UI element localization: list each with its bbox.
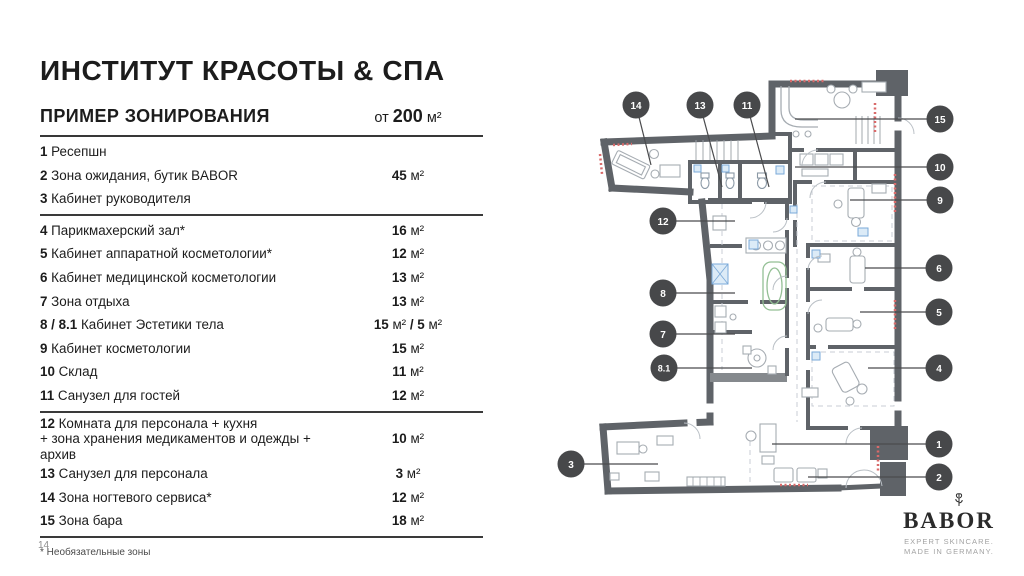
zone-name: Кабинет медицинской косметологии (47, 270, 276, 285)
zone-row: 15 Зона бара18 м² (40, 509, 483, 533)
zone-area: 45 м² (333, 168, 483, 184)
zone-area: 12 м² (333, 490, 483, 506)
rose-icon (952, 492, 966, 507)
svg-text:9: 9 (937, 196, 943, 207)
zone-name-line2: + зона хранения медикаментов и одежды + … (40, 431, 327, 462)
svg-text:10: 10 (934, 163, 946, 174)
min-area-unit: м² (423, 110, 442, 126)
zone-area: 15 м² / 5 м² (333, 317, 483, 333)
zoning-header: ПРИМЕР ЗОНИРОВАНИЯ от 200 м² (40, 106, 483, 137)
svg-text:8.1: 8.1 (658, 364, 671, 374)
zone-number: 11 (40, 388, 54, 403)
brand-logo: BABOR EXPERT SKINCARE. MADE IN GERMANY. (894, 492, 1004, 557)
zone-name: Зона бара (55, 513, 123, 528)
zone-name: Парикмахерский зал* (47, 223, 185, 238)
zone-name: Кабинет руководителя (47, 191, 190, 206)
zone-name: Комната для персонала + кухня (55, 416, 257, 431)
zones-list: 1 Ресепшн2 Зона ожидания, бутик BABOR45 … (40, 140, 483, 538)
zone-name: Ресепшн (47, 144, 106, 159)
zone-number: 14 (40, 490, 55, 505)
zone-name: Санузел для гостей (54, 388, 180, 403)
footnote: * Необязательные зоны (40, 547, 483, 558)
zoning-panel: ПРИМЕР ЗОНИРОВАНИЯ от 200 м² 1 Ресепшн2 … (40, 106, 483, 558)
zone-row: 7 Зона отдыха13 м² (40, 290, 483, 314)
svg-text:11: 11 (742, 101, 753, 112)
zoning-heading: ПРИМЕР ЗОНИРОВАНИЯ (40, 106, 333, 127)
min-area-value: 200 (393, 106, 423, 126)
zone-name: Склад (55, 364, 97, 379)
zone-area: 10 м² (333, 431, 483, 447)
svg-text:15: 15 (934, 115, 946, 126)
zone-area: 11 м² (333, 364, 483, 380)
zone-name: Кабинет аппаратной косметологии* (47, 246, 272, 261)
zone-area: 15 м² (333, 341, 483, 357)
zone-row: 14 Зона ногтевого сервиса*12 м² (40, 486, 483, 510)
zone-row: 9 Кабинет косметологии15 м² (40, 337, 483, 361)
group-divider (40, 536, 483, 538)
slide-root: ИНСТИТУТ КРАСОТЫ & СПА ПРИМЕР ЗОНИРОВАНИ… (0, 0, 1024, 576)
svg-text:6: 6 (936, 264, 942, 275)
brand-name: BABOR (894, 508, 1004, 534)
svg-text:8: 8 (660, 289, 666, 300)
zone-row: 12 Комната для персонала + кухня+ зона х… (40, 416, 483, 463)
zone-row: 1 Ресепшн (40, 140, 483, 164)
svg-text:3: 3 (568, 460, 574, 471)
zone-number: 12 (40, 416, 55, 431)
zone-area: 13 м² (333, 270, 483, 286)
zone-name: Зона ногтевого сервиса* (55, 490, 212, 505)
svg-text:1: 1 (936, 440, 942, 451)
plan-callout-1: 1 (772, 431, 953, 458)
page-number: 14 (38, 540, 49, 551)
svg-text:4: 4 (936, 364, 942, 375)
page-title: ИНСТИТУТ КРАСОТЫ & СПА (40, 55, 445, 87)
zone-row: 10 Склад11 м² (40, 360, 483, 384)
brand-tagline-line2: MADE IN GERMANY. (894, 547, 1004, 557)
svg-text:12: 12 (657, 217, 669, 228)
plan-callout-5: 5 (860, 299, 953, 326)
plan-callout-9: 9 (850, 187, 954, 214)
brand-tagline-line1: EXPERT SKINCARE. (894, 537, 1004, 547)
zone-row: 3 Кабинет руководителя (40, 187, 483, 211)
zone-row: 4 Парикмахерский зал*16 м² (40, 219, 483, 243)
plan-callout-4: 4 (868, 355, 953, 382)
zone-row: 6 Кабинет медицинской косметологии13 м² (40, 266, 483, 290)
zone-area: 12 м² (333, 388, 483, 404)
brand-tagline: EXPERT SKINCARE. MADE IN GERMANY. (894, 537, 1004, 557)
zone-number: 8 / 8.1 (40, 317, 77, 332)
zone-number: 13 (40, 466, 55, 481)
zone-name: Кабинет Эстетики тела (77, 317, 224, 332)
zone-number: 15 (40, 513, 55, 528)
zone-row: 8 / 8.1 Кабинет Эстетики тела15 м² / 5 м… (40, 313, 483, 337)
svg-text:14: 14 (630, 101, 642, 112)
zone-row: 11 Санузел для гостей12 м² (40, 384, 483, 408)
zone-area: 12 м² (333, 246, 483, 262)
svg-text:2: 2 (936, 473, 942, 484)
plan-callout-6: 6 (865, 255, 953, 282)
zone-area: 13 м² (333, 294, 483, 310)
zone-name: Зона отдыха (47, 294, 129, 309)
group-divider (40, 214, 483, 216)
min-area: от 200 м² (333, 106, 483, 127)
group-divider (40, 411, 483, 413)
zone-name: Зона ожидания, бутик BABOR (47, 168, 238, 183)
zone-row: 2 Зона ожидания, бутик BABOR45 м² (40, 164, 483, 188)
zone-number: 10 (40, 364, 55, 379)
zone-area: 3 м² (333, 466, 483, 482)
zone-row: 5 Кабинет аппаратной косметологии*12 м² (40, 242, 483, 266)
min-area-prefix: от (374, 110, 392, 126)
zone-name: Кабинет косметологии (47, 341, 190, 356)
svg-text:5: 5 (936, 308, 942, 319)
zone-row: 13 Санузел для персонала3 м² (40, 462, 483, 486)
zone-name: Санузел для персонала (55, 466, 208, 481)
zone-area: 16 м² (333, 223, 483, 239)
floor-plan: 14 13 11 15 10 9 12 6 8 5 7 8.1 4 1 3 2 (550, 70, 990, 520)
svg-text:13: 13 (694, 101, 706, 112)
svg-text:7: 7 (660, 330, 666, 341)
zone-area: 18 м² (333, 513, 483, 529)
